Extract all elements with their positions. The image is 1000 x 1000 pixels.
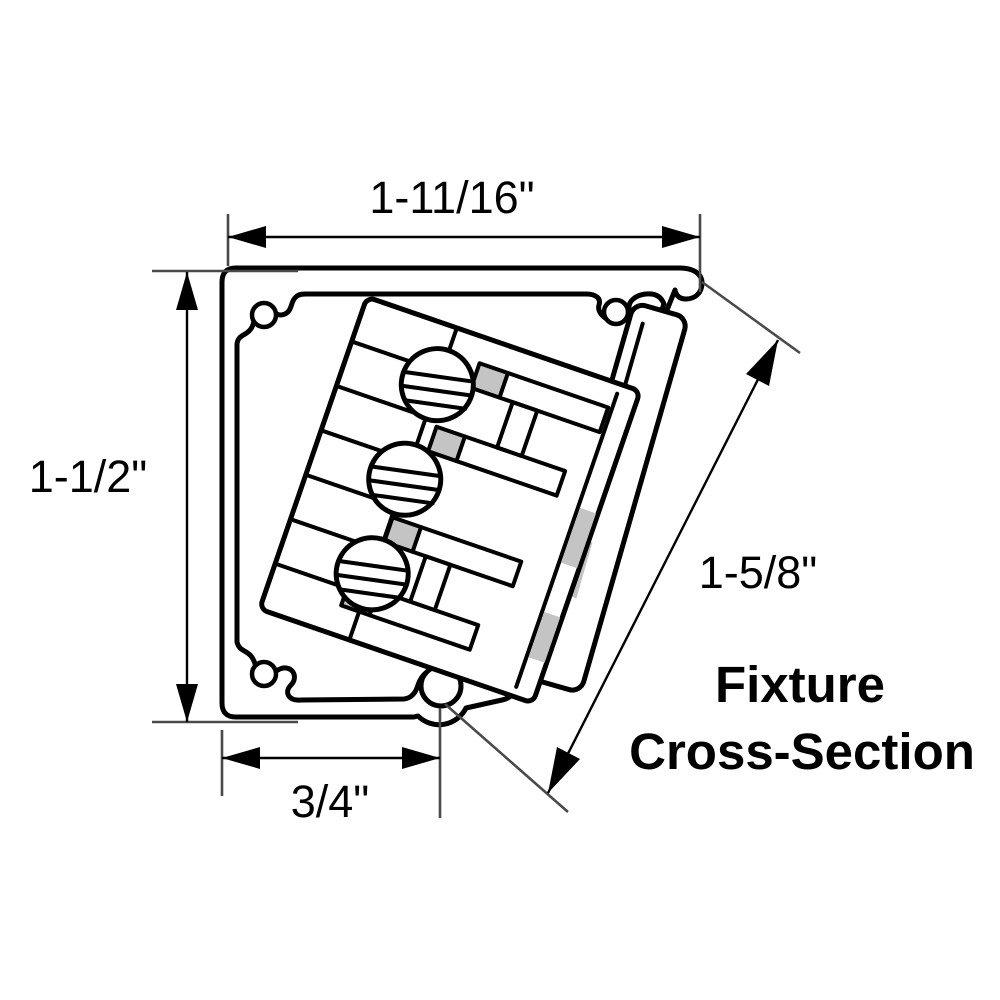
diagram-canvas: 1-11/16" 1-1/2" 3/4" 1-5/8" Fixture Cros… bbox=[0, 0, 1000, 1000]
dim-arrow-right-icon bbox=[402, 747, 440, 769]
screw-boss-bottom-left bbox=[252, 662, 276, 686]
screw-boss-top-left bbox=[252, 303, 276, 327]
dimension-bottom: 3/4" bbox=[222, 708, 440, 827]
extension-line bbox=[702, 282, 800, 353]
dim-arrow-up-icon bbox=[176, 272, 198, 310]
dim-arrow-left-icon bbox=[228, 226, 266, 248]
title-line-2: Cross-Section bbox=[629, 723, 975, 780]
dim-label-top: 1-11/16" bbox=[369, 172, 534, 223]
dim-arrow-left-icon bbox=[222, 747, 260, 769]
title-line-1: Fixture bbox=[715, 656, 885, 713]
dim-arrow-right-icon bbox=[662, 226, 700, 248]
dim-arrow-downleft-icon bbox=[548, 747, 580, 793]
dim-arrow-upright-icon bbox=[746, 340, 778, 386]
fixture-cross-section-diagram: 1-11/16" 1-1/2" 3/4" 1-5/8" Fixture Cros… bbox=[0, 0, 1000, 1000]
extension-line bbox=[445, 704, 568, 812]
dim-label-bottom: 3/4" bbox=[291, 776, 370, 827]
diagram-title: Fixture Cross-Section bbox=[629, 656, 975, 780]
dim-label-left: 1-1/2" bbox=[29, 451, 148, 502]
dim-arrow-down-icon bbox=[176, 684, 198, 722]
dim-label-diagonal: 1-5/8" bbox=[699, 547, 818, 598]
screw-boss-top-right bbox=[604, 300, 628, 324]
